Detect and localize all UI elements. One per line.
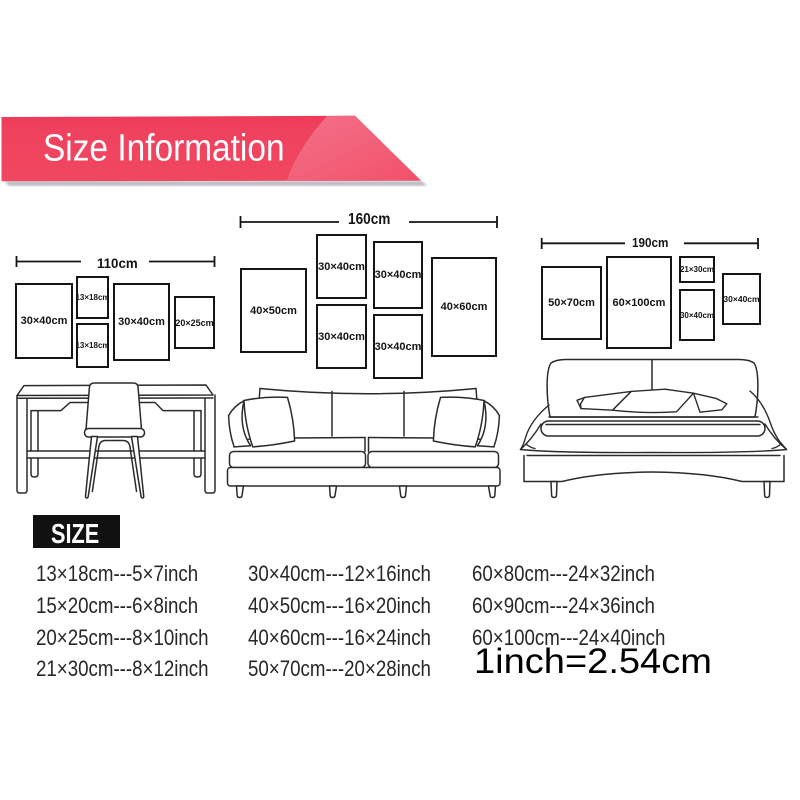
svg-text:Size Information: Size Information	[43, 127, 285, 169]
